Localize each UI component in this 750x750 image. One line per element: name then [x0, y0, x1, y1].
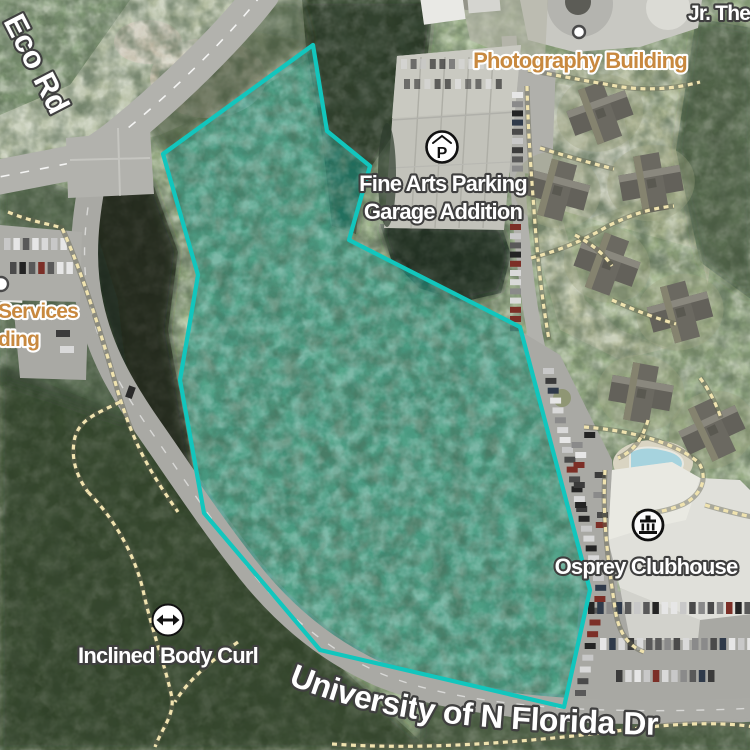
svg-text:Jr. The: Jr. The	[688, 2, 750, 25]
svg-text:P: P	[437, 145, 448, 162]
svg-text:Inclined Body Curl: Inclined Body Curl	[78, 643, 258, 668]
svg-text:Garage Addition: Garage Addition	[364, 199, 523, 224]
svg-text:Osprey Clubhouse: Osprey Clubhouse	[555, 554, 738, 579]
svg-text:Photography Building: Photography Building	[473, 48, 687, 73]
svg-text:Services: Services	[0, 300, 78, 323]
svg-text:ding: ding	[0, 328, 39, 351]
svg-text:Fine Arts Parking: Fine Arts Parking	[359, 171, 527, 196]
